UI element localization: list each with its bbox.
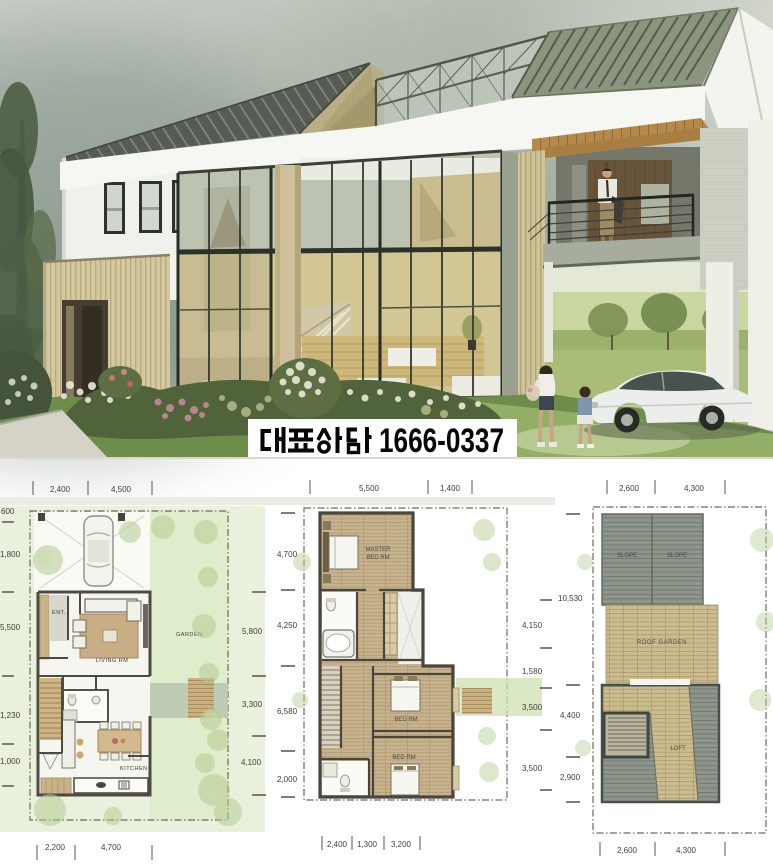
svg-text:4,700: 4,700 (101, 843, 122, 852)
svg-text:5,500: 5,500 (359, 484, 380, 493)
svg-text:ROOF GARDEN: ROOF GARDEN (637, 640, 687, 646)
svg-text:2,400: 2,400 (50, 485, 71, 494)
svg-text:5,500: 5,500 (0, 623, 21, 632)
svg-text:4,400: 4,400 (560, 711, 581, 720)
svg-text:MASTER: MASTER (365, 547, 391, 553)
svg-text:6,580: 6,580 (277, 707, 298, 716)
svg-text:600: 600 (1, 507, 15, 516)
svg-text:4,100: 4,100 (241, 758, 262, 767)
svg-text:3,500: 3,500 (522, 703, 543, 712)
svg-text:SLOPE: SLOPE (667, 553, 687, 559)
svg-text:3,200: 3,200 (391, 840, 412, 849)
svg-text:4,700: 4,700 (277, 550, 298, 559)
svg-text:4,500: 4,500 (111, 485, 132, 494)
svg-text:1666-0337: 1666-0337 (379, 422, 504, 460)
svg-text:3,300: 3,300 (242, 700, 263, 709)
svg-text:2,600: 2,600 (619, 484, 640, 493)
svg-text:ENT.: ENT. (52, 610, 66, 616)
svg-text:3,500: 3,500 (522, 764, 543, 773)
svg-text:1,400: 1,400 (440, 484, 461, 493)
svg-text:4,250: 4,250 (277, 621, 298, 630)
svg-text:2,200: 2,200 (45, 843, 66, 852)
svg-text:KITCHEN: KITCHEN (120, 766, 148, 772)
svg-text:4,300: 4,300 (684, 484, 705, 493)
svg-text:4,150: 4,150 (522, 621, 543, 630)
svg-text:1,580: 1,580 (522, 667, 543, 676)
svg-text:2,400: 2,400 (327, 840, 348, 849)
svg-text:SLOPE: SLOPE (617, 553, 637, 559)
svg-text:1,230: 1,230 (0, 711, 21, 720)
svg-text:1,800: 1,800 (0, 550, 21, 559)
svg-text:LIVING RM: LIVING RM (96, 658, 129, 664)
svg-text:2,900: 2,900 (560, 773, 581, 782)
svg-text:BED RM: BED RM (392, 755, 415, 761)
svg-text:4,300: 4,300 (676, 846, 697, 855)
svg-text:1,300: 1,300 (357, 840, 378, 849)
svg-text:LOFT: LOFT (670, 746, 686, 752)
svg-text:BED RM: BED RM (366, 555, 389, 561)
svg-text:BED RM: BED RM (394, 717, 417, 723)
svg-text:5,800: 5,800 (242, 627, 263, 636)
svg-text:2,600: 2,600 (617, 846, 638, 855)
svg-text:2,000: 2,000 (277, 775, 298, 784)
svg-text:10,530: 10,530 (558, 594, 583, 603)
svg-text:1,000: 1,000 (0, 757, 21, 766)
